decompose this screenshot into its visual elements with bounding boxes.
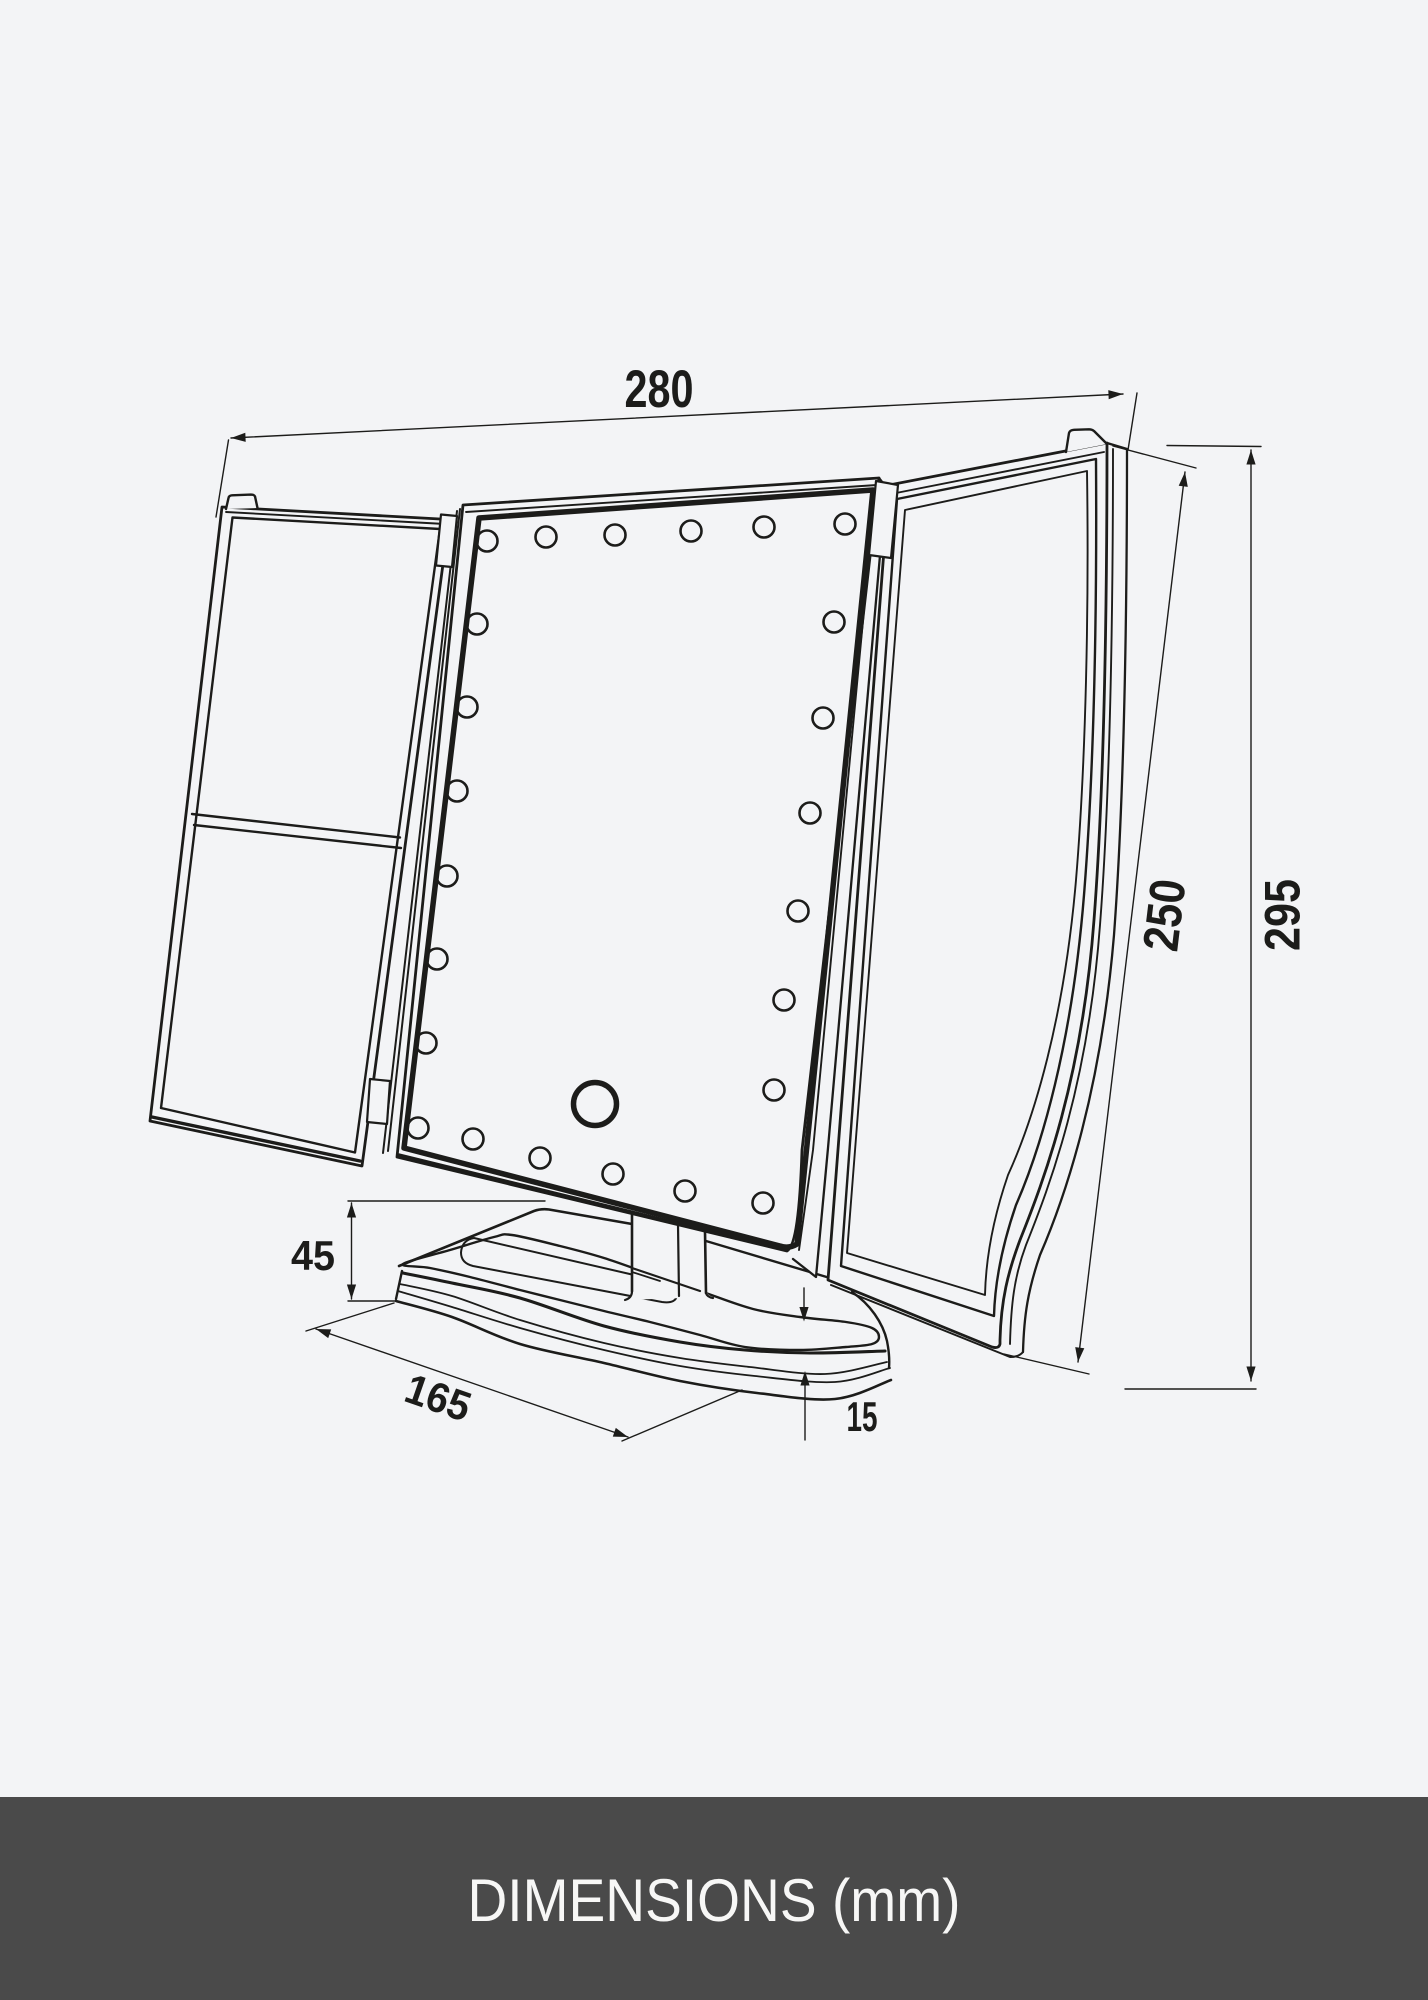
svg-text:DIMENSIONS (mm): DIMENSIONS (mm) (468, 1867, 961, 1934)
svg-text:295: 295 (1255, 879, 1311, 951)
svg-text:45: 45 (291, 1232, 335, 1279)
svg-text:15: 15 (847, 1393, 878, 1440)
svg-text:250: 250 (1132, 876, 1196, 954)
svg-text:280: 280 (625, 360, 694, 419)
